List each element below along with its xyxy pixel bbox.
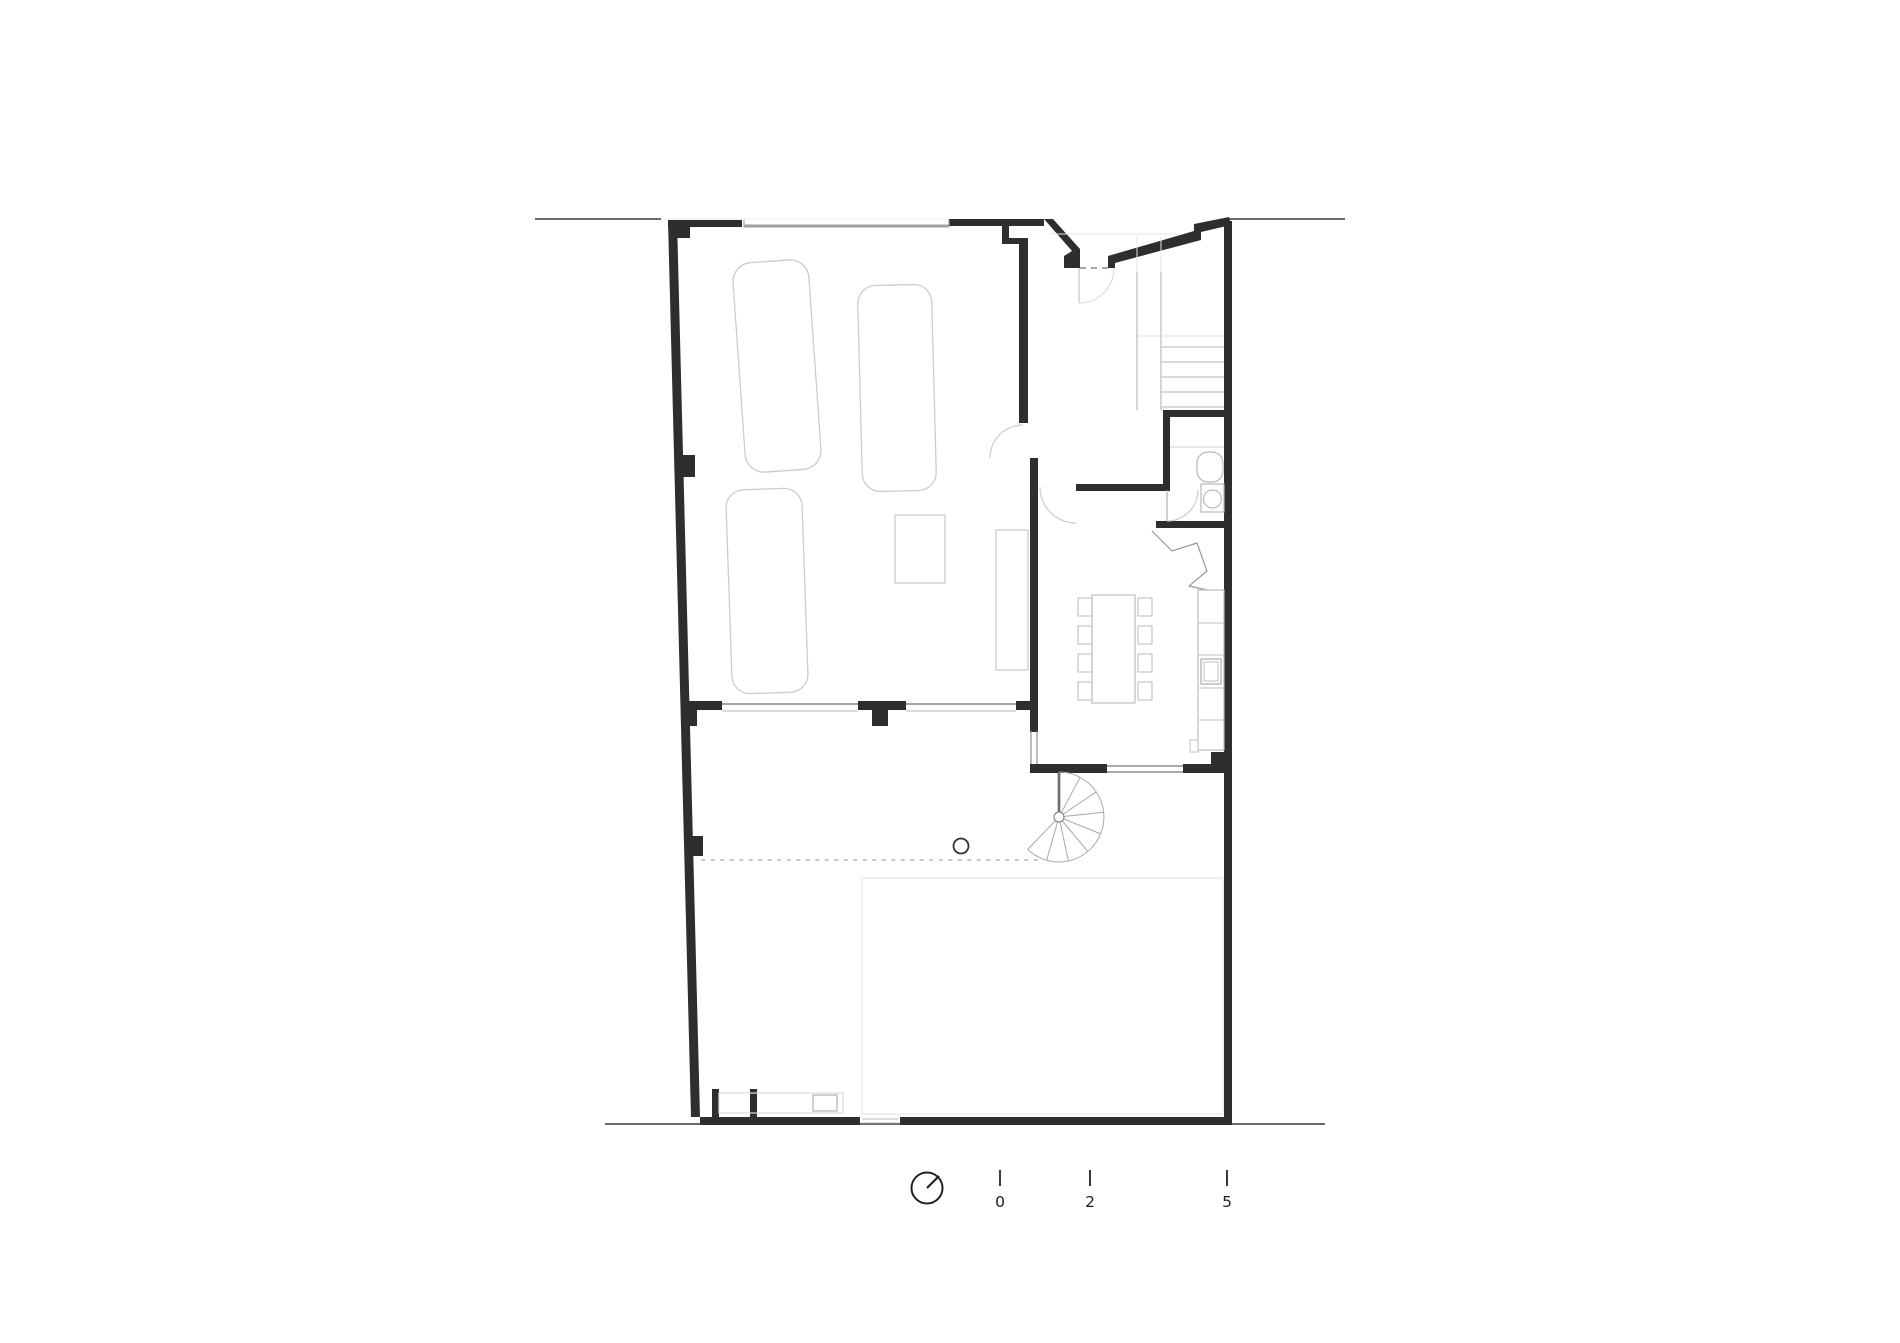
- garage: [722, 220, 1037, 764]
- floor-plan-canvas: 0 2 5: [0, 0, 1900, 1343]
- chair: [1078, 626, 1092, 644]
- floor-plan-page: 0 2 5: [0, 0, 1900, 1343]
- wall-garage-hall: [1019, 242, 1028, 423]
- chair: [1078, 682, 1092, 700]
- zigzag-partition: [1152, 531, 1207, 590]
- wall-bathroom-bottom: [1156, 521, 1224, 528]
- wall-dining-south: [1030, 764, 1107, 773]
- wall-south: [700, 1117, 860, 1125]
- wall-pilaster: [683, 455, 695, 477]
- north-arrow-icon: [912, 1173, 943, 1204]
- chair: [1078, 598, 1092, 616]
- wall-entry-splay-right: [1108, 217, 1231, 268]
- dining-table: [1092, 595, 1135, 703]
- wall-bathroom-left: [1163, 410, 1170, 490]
- wall-entry-splay-left: [1044, 219, 1080, 268]
- wall-hall-dining: [1076, 484, 1170, 491]
- planter-strip: [719, 1093, 843, 1113]
- scale-label: 2: [1085, 1193, 1095, 1211]
- dining-room: [1078, 531, 1224, 772]
- wall-garage-south-pier: [872, 708, 888, 726]
- bathroom: [1167, 447, 1224, 521]
- workbench: [996, 530, 1028, 670]
- spiral-stair: [1028, 772, 1104, 862]
- tree-circle: [954, 839, 969, 854]
- entry-door-arc: [1079, 268, 1114, 303]
- chair: [1138, 654, 1152, 672]
- straight-stair: [1137, 272, 1224, 410]
- interior-door-arc: [990, 425, 1023, 458]
- wall-garage-south: [688, 708, 697, 726]
- wall-dining-south-corner: [1183, 752, 1224, 773]
- wall-garage-south: [1016, 701, 1034, 710]
- gate-opening: [862, 1119, 898, 1123]
- wall-planter-pier: [712, 1089, 719, 1117]
- kitchen-counter: [1190, 590, 1224, 752]
- wall-front-right: [949, 219, 1044, 226]
- interior-door-arc: [1167, 490, 1198, 521]
- wall-west: [668, 220, 700, 1117]
- interior-door-arc: [1040, 487, 1076, 523]
- car-outline: [857, 284, 936, 492]
- wall-bathroom-top: [1163, 410, 1224, 417]
- wall-south: [900, 1117, 1232, 1125]
- car-outline: [732, 259, 822, 474]
- wall-front-left: [668, 220, 742, 238]
- courtyard: [702, 772, 1223, 1123]
- counter-end: [1190, 740, 1198, 752]
- courtyard-paving: [862, 878, 1223, 1114]
- dining-window: [1107, 766, 1183, 772]
- wall-garage-dining: [1030, 458, 1038, 732]
- chair: [1078, 654, 1092, 672]
- spiral-stair-newel: [1054, 812, 1064, 822]
- wall-east: [1224, 221, 1232, 1124]
- chair: [1138, 626, 1152, 644]
- kitchen-sink-basin: [1204, 662, 1218, 681]
- chair: [1138, 598, 1152, 616]
- pallet-box: [895, 515, 945, 583]
- car-outline: [725, 488, 808, 695]
- washbasin: [1197, 452, 1223, 482]
- planter-box: [813, 1095, 837, 1111]
- chair: [1138, 682, 1152, 700]
- scale-label: 5: [1222, 1193, 1232, 1211]
- building-walls: [668, 217, 1232, 1125]
- wall-pilaster: [692, 836, 703, 856]
- scale-label: 0: [995, 1193, 1005, 1211]
- washing-machine-drum: [1204, 490, 1222, 508]
- compass-and-scale: 0 2 5: [912, 1170, 1232, 1211]
- glass-link: [1031, 730, 1037, 764]
- entry-hall: [1040, 234, 1224, 523]
- scale-bar: 0 2 5: [995, 1170, 1232, 1211]
